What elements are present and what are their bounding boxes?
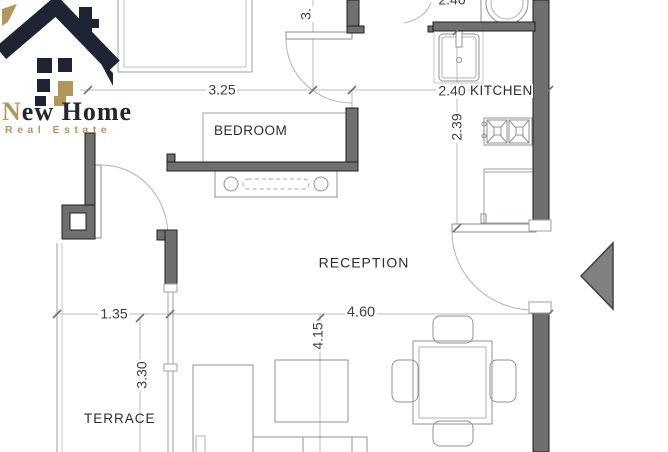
logo-brand-initial: N [2, 97, 22, 126]
floorplan-page: New Home Real Estate BEDROOM KITCHEN REC… [0, 0, 668, 452]
dim-kitchen-width: 2.40 [436, 84, 467, 99]
terrace-door [94, 165, 168, 238]
dimension-ticks [53, 27, 553, 322]
dining-set [392, 316, 516, 446]
stove-icon [482, 118, 532, 145]
dim-kitchen-depth: 2.39 [450, 111, 465, 142]
washing-machine-icon [481, 0, 533, 24]
dim-reception-depth: 4.15 [311, 320, 326, 351]
terrace-window [164, 284, 177, 452]
room-label-terrace: TERRACE [84, 412, 156, 426]
logo-brand-rest: ew Home [22, 97, 132, 126]
dim-bedroom-width: 3.25 [206, 83, 237, 98]
kitchen-counter [481, 169, 533, 223]
dim-reception-width: 4.60 [345, 305, 377, 320]
dim-bath-depth-partial: 3. [299, 6, 314, 22]
entrance-door-frame [529, 220, 551, 313]
bedroom-door [286, 32, 352, 103]
bathroom-door-partial [404, 2, 431, 23]
floorplan-drawing [0, 0, 668, 452]
dim-terrace-width: 1.35 [98, 307, 129, 322]
logo-house-icon [1, 4, 114, 106]
entrance-door [452, 224, 536, 310]
room-label-reception: RECEPTION [319, 256, 410, 271]
logo-tagline: Real Estate [5, 124, 111, 136]
column-core [70, 213, 86, 230]
entry-arrow-icon [581, 243, 613, 309]
sofa [253, 437, 367, 452]
coffee-table [275, 360, 348, 422]
dim-bath-width-partial: 2.40 [436, 0, 467, 7]
dim-terrace-depth: 3.30 [135, 359, 150, 390]
room-label-bedroom: BEDROOM [214, 124, 287, 138]
bed [118, 0, 252, 72]
kitchen-sink-icon [434, 30, 483, 83]
logo-brand-text: New Home [2, 97, 132, 127]
terrace-edge [57, 243, 62, 452]
tv-console [215, 171, 337, 197]
room-label-kitchen: KITCHEN [470, 84, 533, 98]
armchair [193, 365, 253, 452]
